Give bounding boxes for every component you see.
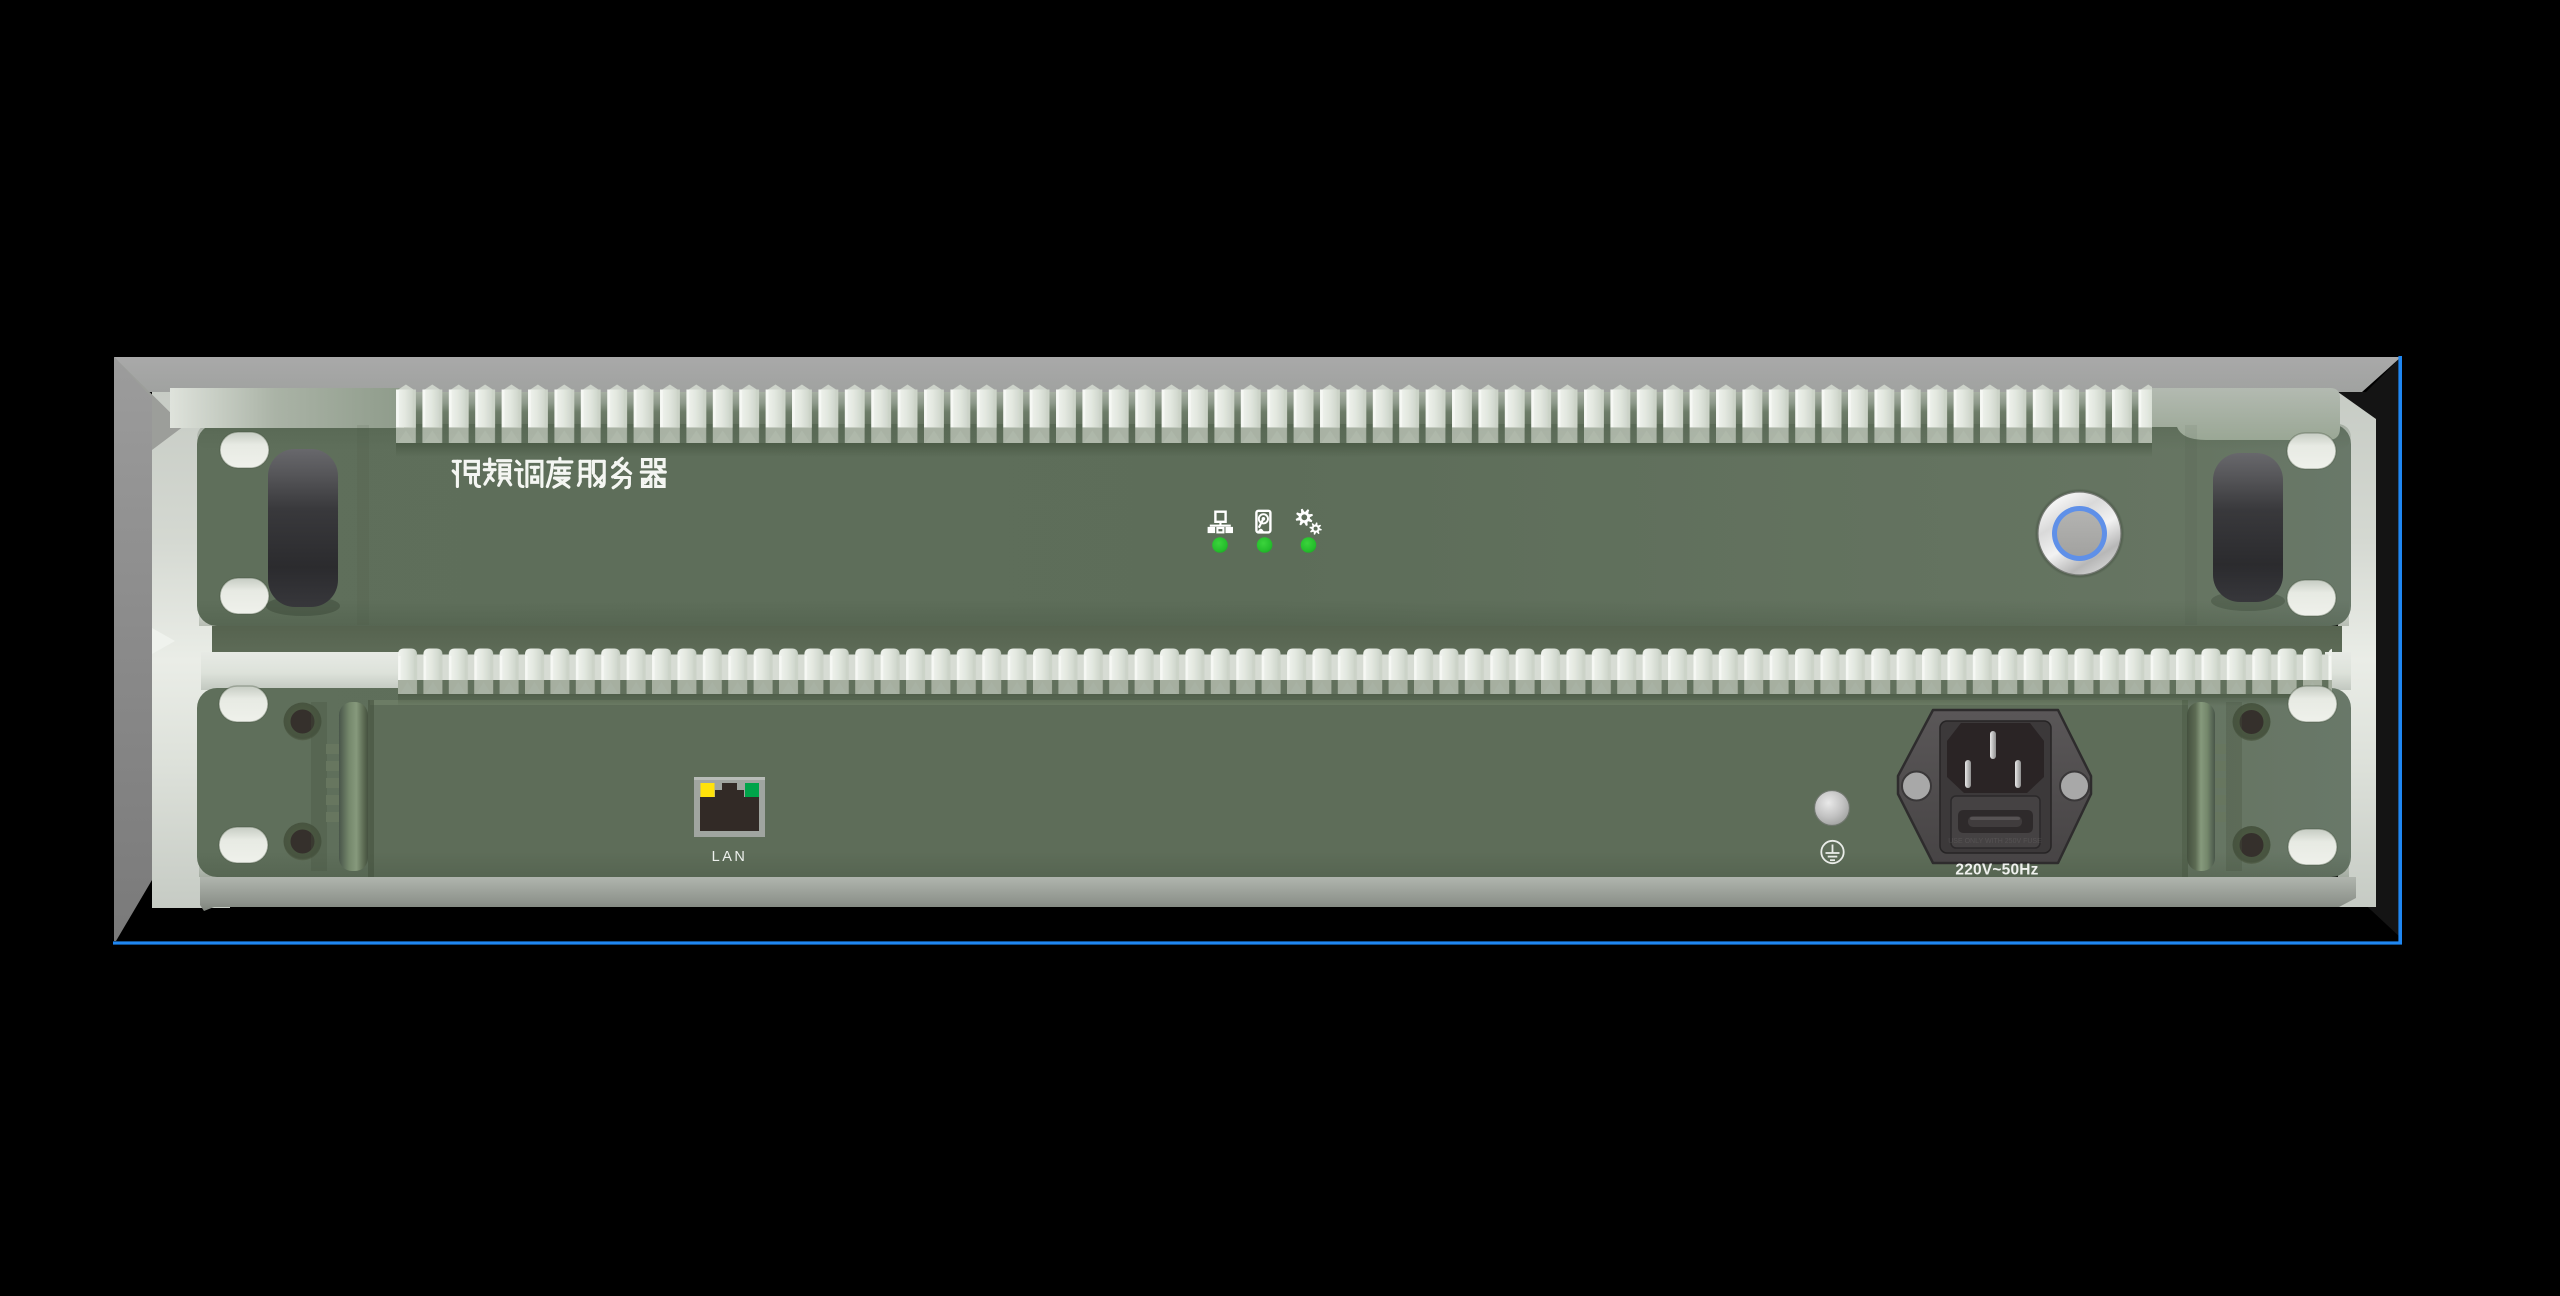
svg-text:LAN: LAN xyxy=(712,849,748,865)
svg-text:220V~50Hz: 220V~50Hz xyxy=(1955,862,2038,879)
svg-text:USE ONLY WITH 250V FUSE: USE ONLY WITH 250V FUSE xyxy=(1948,838,2042,845)
